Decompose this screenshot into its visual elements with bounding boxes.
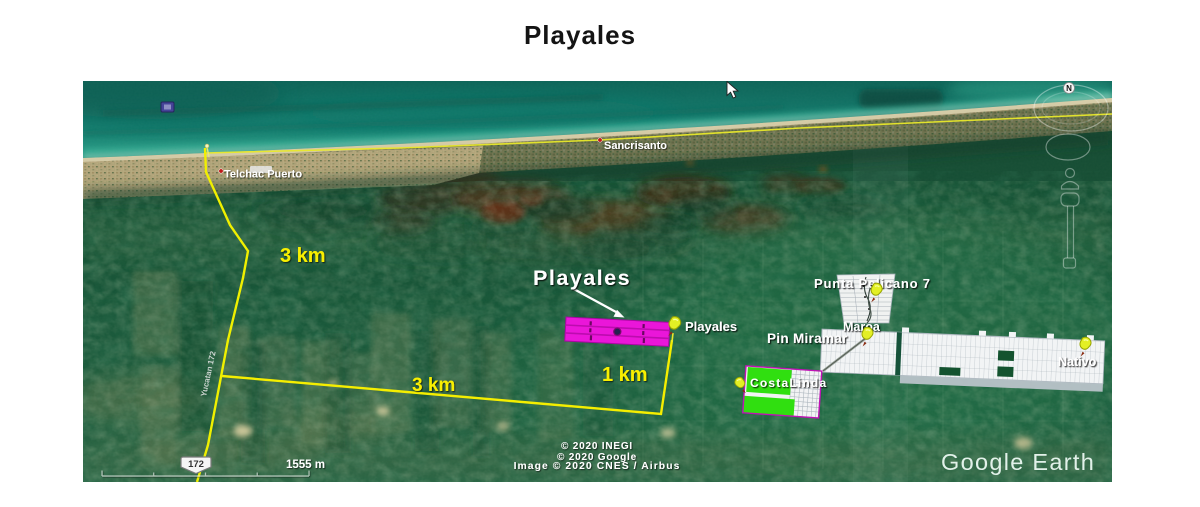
svg-text:Pin Miramar: Pin Miramar bbox=[767, 331, 848, 346]
svg-text:1555 m: 1555 m bbox=[286, 459, 325, 471]
svg-text:Sancrisanto: Sancrisanto bbox=[604, 140, 667, 152]
svg-text:Playales: Playales bbox=[685, 319, 737, 334]
svg-text:CostaLinda: CostaLinda bbox=[750, 376, 827, 390]
svg-text:Google Earth: Google Earth bbox=[941, 449, 1095, 475]
svg-text:Nativo: Nativo bbox=[1058, 355, 1097, 369]
svg-text:N: N bbox=[1066, 84, 1072, 93]
svg-text:© 2020 INEGI: © 2020 INEGI bbox=[561, 441, 633, 452]
svg-text:1 km: 1 km bbox=[602, 364, 648, 386]
svg-text:Telchac Puerto: Telchac Puerto bbox=[224, 169, 302, 181]
svg-text:Image © 2020 CNES / Airbus: Image © 2020 CNES / Airbus bbox=[514, 461, 681, 472]
svg-text:172: 172 bbox=[188, 459, 204, 470]
svg-text:3 km: 3 km bbox=[280, 245, 326, 267]
svg-text:Playales: Playales bbox=[533, 266, 631, 290]
svg-text:3 km: 3 km bbox=[412, 375, 455, 396]
